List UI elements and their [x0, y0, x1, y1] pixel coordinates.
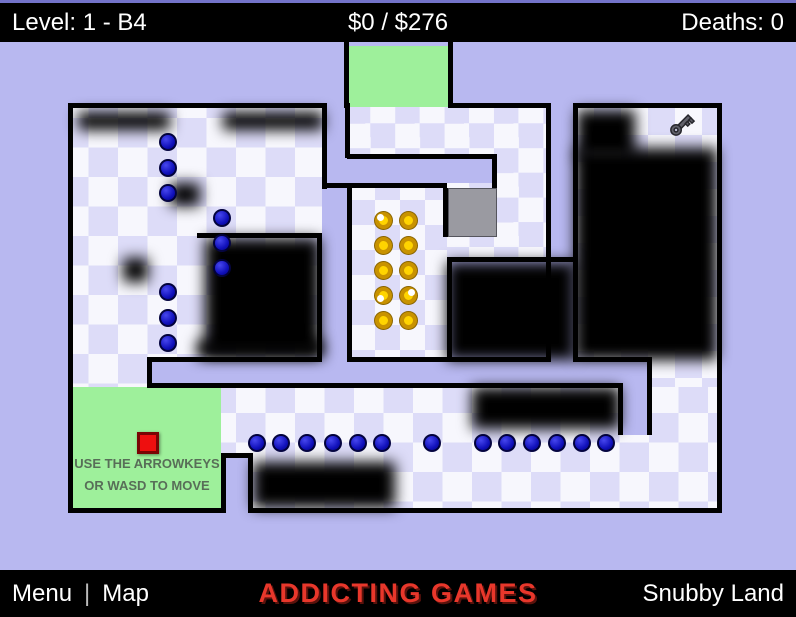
enemy-dot: [498, 434, 516, 452]
coin: [375, 262, 392, 279]
corridor: [623, 383, 647, 435]
enemy-dot: [248, 434, 266, 452]
coin: [400, 262, 417, 279]
maze-wall: [68, 508, 226, 513]
enemy-dot: [159, 334, 177, 352]
coin-shine-highlight: [408, 289, 415, 296]
fog-patch: [575, 148, 717, 360]
goal-zone: [349, 46, 448, 107]
enemy-dot: [159, 133, 177, 151]
enemy-dot: [373, 434, 391, 452]
coin-shine-highlight: [377, 295, 384, 302]
maze-wall: [344, 42, 349, 108]
maze-wall: [717, 103, 722, 362]
key-icon: [666, 110, 696, 140]
maze-wall: [68, 103, 327, 108]
maze-wall: [448, 42, 453, 108]
gray-block: [448, 188, 497, 237]
coin-shine-highlight: [377, 214, 384, 221]
fog-patch: [197, 340, 323, 358]
enemy-dot: [523, 434, 541, 452]
deaths-indicator: Deaths: 0: [681, 9, 784, 37]
maze-wall: [345, 103, 350, 158]
hud-bar: Level: 1 - B4 $0 / $276 Deaths: 0: [0, 0, 796, 42]
fog-patch: [205, 238, 320, 355]
maze-wall: [443, 188, 448, 237]
maze-wall: [453, 103, 551, 108]
game-window: USE THE ARROWKEYSOR WASD TO MOVE Level: …: [0, 0, 796, 617]
enemy-dot: [159, 283, 177, 301]
map-button[interactable]: Map: [102, 580, 149, 608]
enemy-dot: [213, 209, 231, 227]
credit-label: Snubby Land: [643, 580, 784, 608]
enemy-dot: [474, 434, 492, 452]
addicting-games-logo[interactable]: ADDICTING GAMES: [259, 578, 538, 608]
fog-patch: [447, 262, 575, 360]
enemy-dot: [213, 234, 231, 252]
checker-room: [652, 362, 717, 387]
fog-patch: [123, 258, 148, 282]
checker-room: [351, 186, 447, 357]
coin: [400, 312, 417, 329]
maze-wall: [347, 154, 497, 159]
maze-wall: [221, 458, 226, 513]
coin: [375, 237, 392, 254]
maze-wall: [68, 103, 73, 513]
maze-wall: [647, 357, 652, 435]
fog-patch: [253, 462, 395, 508]
player-square[interactable]: [137, 432, 159, 454]
coin: [400, 237, 417, 254]
enemy-dot: [159, 159, 177, 177]
fog-patch: [223, 112, 323, 130]
maze-wall: [717, 357, 722, 513]
start-zone-hint: USE THE ARROWKEYSOR WASD TO MOVE: [73, 453, 221, 497]
enemy-dot: [159, 309, 177, 327]
menu-map-separator: |: [84, 580, 90, 608]
enemy-dot: [573, 434, 591, 452]
enemy-dot: [548, 434, 566, 452]
playfield[interactable]: USE THE ARROWKEYSOR WASD TO MOVE: [0, 42, 796, 570]
corridor: [226, 458, 248, 508]
footer-bar: Menu | Map ADDICTING GAMES Snubby Land: [0, 570, 796, 617]
coin: [400, 287, 417, 304]
maze-wall: [322, 183, 447, 188]
enemy-dot: [324, 434, 342, 452]
enemy-dot: [349, 434, 367, 452]
enemy-dot: [298, 434, 316, 452]
menu-button[interactable]: Menu: [12, 580, 72, 608]
corridor: [349, 158, 497, 183]
hint-line2: OR WASD TO MOVE: [73, 475, 221, 497]
maze-wall: [248, 508, 722, 513]
maze-wall: [573, 103, 722, 108]
enemy-dot: [159, 184, 177, 202]
corridor: [152, 362, 647, 383]
coin: [375, 312, 392, 329]
coin: [375, 212, 392, 229]
enemy-dot: [597, 434, 615, 452]
coin: [375, 287, 392, 304]
enemy-dot: [272, 434, 290, 452]
coin: [400, 212, 417, 229]
enemy-dot: [213, 259, 231, 277]
maze-wall: [347, 183, 352, 362]
fog-patch: [472, 387, 620, 429]
corridor: [325, 108, 347, 362]
level-indicator: Level: 1 - B4: [12, 9, 147, 37]
hint-line1: USE THE ARROWKEYS: [73, 453, 221, 475]
maze-wall: [492, 154, 497, 188]
fog-patch: [78, 112, 170, 130]
enemy-dot: [423, 434, 441, 452]
